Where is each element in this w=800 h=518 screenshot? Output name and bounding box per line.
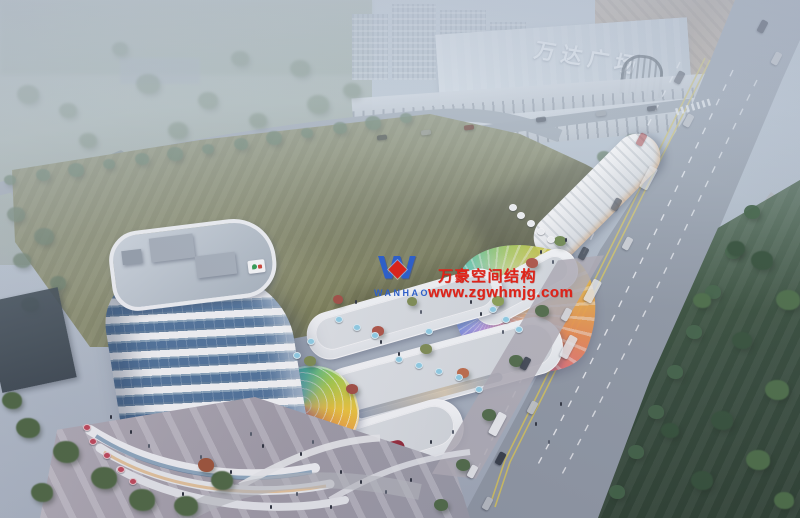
- car: [481, 496, 493, 511]
- warehouse: [120, 58, 200, 84]
- car: [494, 451, 506, 466]
- watermark-url: www.zgwhmjg.com: [428, 284, 573, 301]
- rooftop-unit: [121, 249, 143, 265]
- tower-logo: [247, 259, 265, 274]
- watermark-title: 万豪空间结构: [438, 265, 537, 286]
- pedestrian: [535, 422, 537, 426]
- pedestrian: [560, 402, 562, 406]
- logo-red-mark: [257, 264, 261, 268]
- tree: [2, 392, 22, 409]
- car: [526, 400, 538, 415]
- pedestrian: [548, 440, 550, 444]
- aerial-render-scene: 万达广场: [0, 0, 800, 518]
- wanhao-logo-text: WANHAO: [374, 288, 430, 298]
- residential-tower: [352, 14, 388, 80]
- car: [621, 236, 633, 251]
- residential-tower: [392, 4, 436, 80]
- watermark: W WANHAO 万豪空间结构 www.zgwhmjg.com: [370, 250, 605, 314]
- logo-green-mark: [251, 264, 257, 270]
- tree: [16, 418, 40, 438]
